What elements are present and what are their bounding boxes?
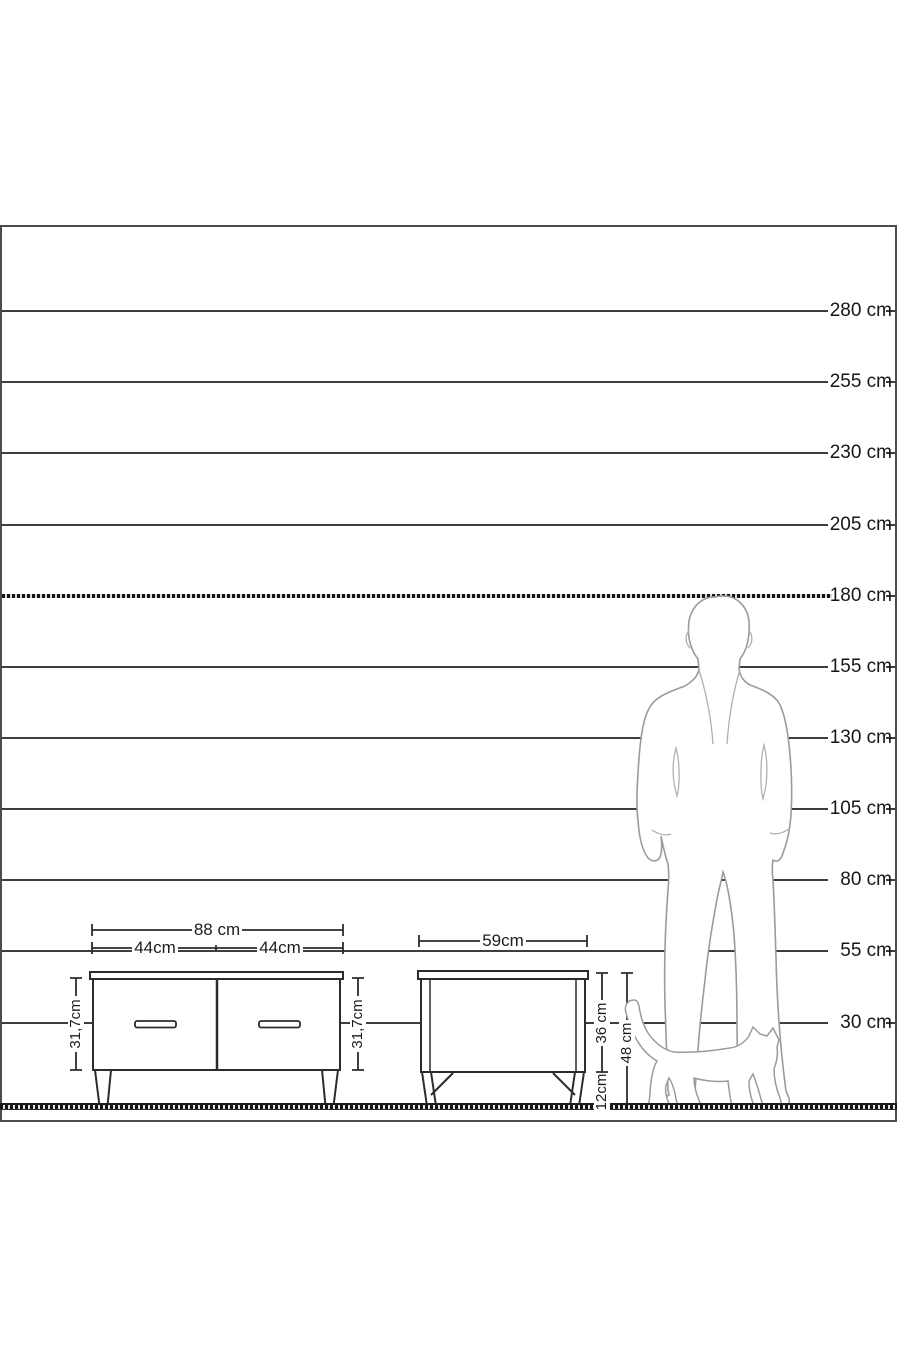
nightstand-body-height-label: 36 cm <box>594 1000 610 1046</box>
ruler-line-230 <box>2 452 828 454</box>
ruler-label-80: 80 cm <box>822 869 892 891</box>
nightstand-leg-height-label: 12cm <box>594 1073 610 1111</box>
ruler-line-180 <box>2 594 832 598</box>
tv-stand-left-door-label: 44cm <box>132 939 178 957</box>
ruler-line-255 <box>2 381 828 383</box>
ruler-line-30 <box>2 1022 828 1024</box>
tv-stand-height-label-left: 31,7cm <box>68 996 84 1052</box>
ruler-line-55 <box>2 950 828 952</box>
ruler-line-130 <box>2 737 828 739</box>
ruler-line-205 <box>2 524 828 526</box>
ruler-label-130: 130 cm <box>822 727 892 749</box>
nightstand-width-label: 59cm <box>480 932 526 950</box>
ruler-label-280: 280 cm <box>822 300 892 322</box>
tv-stand-height-label-right: 31,7cm <box>350 996 366 1052</box>
ruler-label-230: 230 cm <box>822 442 892 464</box>
ruler-label-180: 180 cm <box>822 585 892 607</box>
ruler-label-105: 105 cm <box>822 798 892 820</box>
tv-stand-right-door-label: 44cm <box>257 939 303 957</box>
ruler-label-255: 255 cm <box>822 371 892 393</box>
ruler-label-155: 155 cm <box>822 656 892 678</box>
ground-line <box>0 1103 897 1110</box>
ruler-label-30: 30 cm <box>822 1012 892 1034</box>
tv-stand-width-label: 88 cm <box>192 921 242 939</box>
ruler-line-280 <box>2 310 828 312</box>
scale-diagram: 280 cm255 cm230 cm205 cm180 cm155 cm130 … <box>0 0 900 1350</box>
ruler-line-155 <box>2 666 828 668</box>
ruler-line-105 <box>2 808 828 810</box>
height-ruler: 280 cm255 cm230 cm205 cm180 cm155 cm130 … <box>0 0 900 1350</box>
ruler-label-205: 205 cm <box>822 514 892 536</box>
nightstand-total-height-label: 48 cm <box>619 1020 635 1066</box>
ruler-line-80 <box>2 879 828 881</box>
ruler-label-55: 55 cm <box>822 940 892 962</box>
